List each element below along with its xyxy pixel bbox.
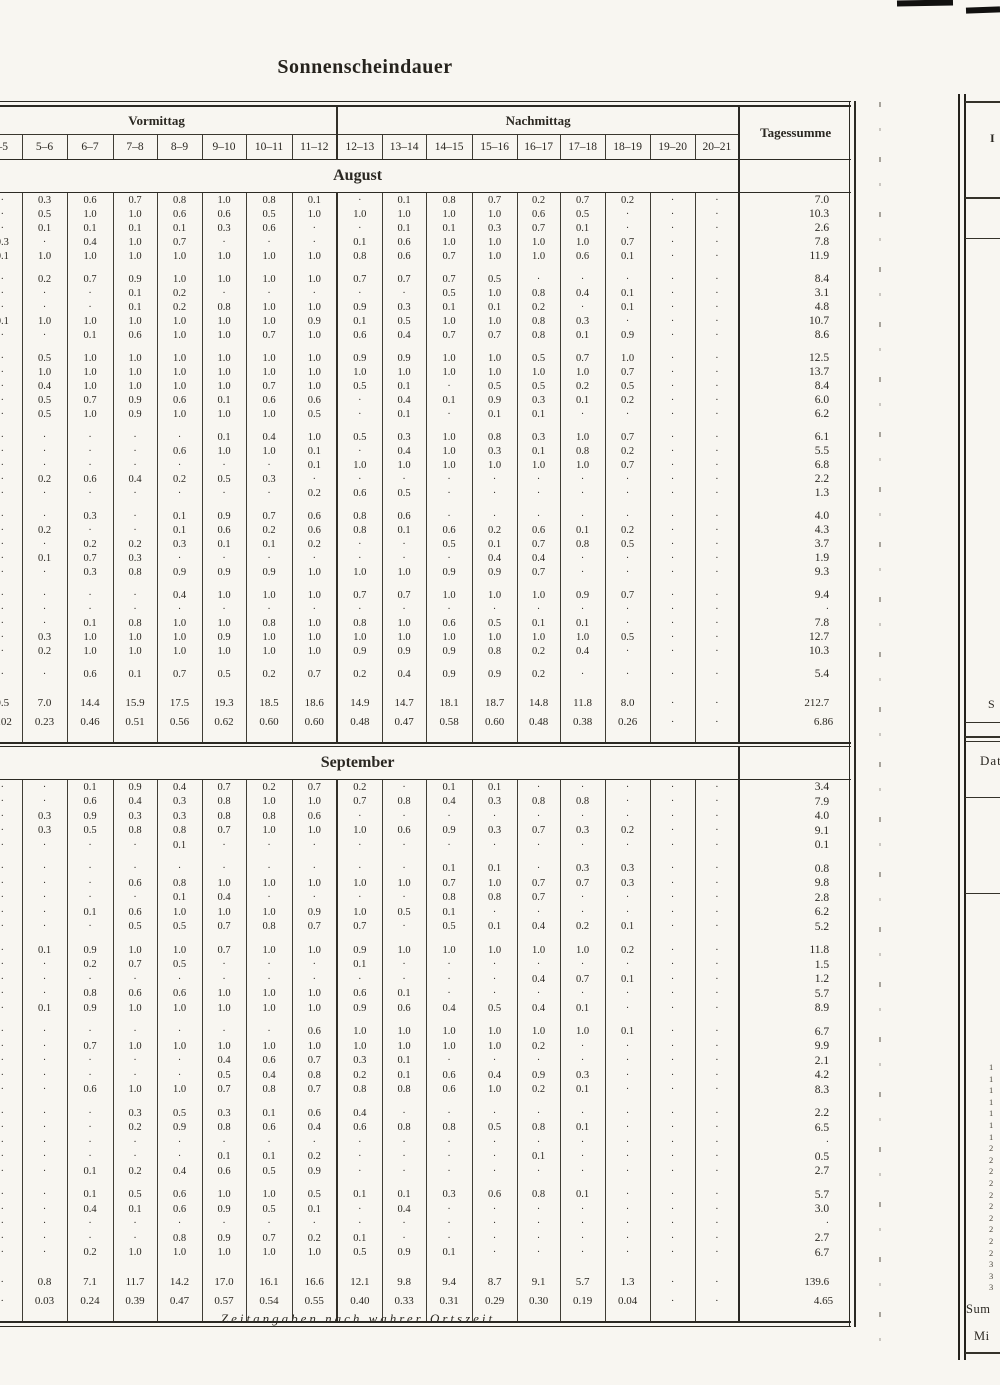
value-cell: ·: [517, 1231, 560, 1246]
spacer-cell: [739, 421, 851, 430]
fragment-date-digit: 1: [989, 1074, 993, 1084]
spacer-cell: [560, 733, 605, 743]
value-cell: ·: [0, 905, 22, 920]
value-cell: ·: [560, 809, 605, 824]
value-cell: ·: [560, 891, 605, 906]
spacer-cell: [337, 500, 382, 509]
tagessumme-cell: 1.5: [739, 958, 851, 973]
value-cell: 1.0: [202, 1188, 246, 1203]
value-cell: 0.7: [246, 509, 292, 523]
value-cell: 0.6: [337, 486, 382, 500]
fragment-date-digit: 1: [989, 1062, 993, 1072]
value-cell: 1.0: [246, 1039, 292, 1054]
value-cell: 1.0: [560, 630, 605, 644]
value-cell: ·: [382, 1231, 426, 1246]
value-cell: 0.1: [246, 1106, 292, 1121]
value-cell: 0.7: [560, 876, 605, 891]
tagessumme-cell: 9.9: [739, 1039, 851, 1054]
spacer-cell: [202, 1097, 246, 1106]
value-cell: 1.0: [246, 588, 292, 602]
value-cell: 0.4: [157, 1164, 202, 1179]
value-cell: ·: [605, 1135, 650, 1150]
value-cell: 0.1: [517, 1150, 560, 1165]
value-cell: ·: [650, 795, 695, 810]
value-cell: ·: [695, 891, 739, 906]
value-cell: ·: [650, 891, 695, 906]
value-cell: 0.6: [202, 1164, 246, 1179]
value-cell: 1.0: [292, 616, 337, 630]
value-cell: ·: [695, 824, 739, 839]
value-cell: ·: [650, 1068, 695, 1083]
value-cell: ·: [67, 300, 113, 314]
value-cell: ·: [202, 1217, 246, 1232]
value-cell: ·: [605, 891, 650, 906]
value-cell: 0.8: [246, 616, 292, 630]
spacer-cell: [67, 1260, 113, 1268]
value-cell: ·: [246, 1025, 292, 1040]
value-cell: 0.7: [67, 551, 113, 565]
value-cell: ·: [650, 509, 695, 523]
value-cell: 1.0: [246, 444, 292, 458]
spacer-cell: [202, 1016, 246, 1025]
value-cell: 0.7: [202, 1083, 246, 1098]
monthly-sum-row: 0.57.014.415.917.519.318.518.614.914.718…: [0, 689, 851, 711]
value-cell: ·: [560, 838, 605, 853]
spacer-cell: [382, 579, 426, 588]
value-cell: 11.8: [560, 689, 605, 711]
value-cell: 1.0: [202, 644, 246, 658]
spacer-cell: [292, 1097, 337, 1106]
value-cell: 1.0: [157, 1083, 202, 1098]
spacer-cell: [0, 1016, 22, 1025]
day-row: ·0.51.00.91.01.01.00.5·0.1·0.10.1····6.2: [0, 407, 851, 421]
spacer-cell: [22, 500, 67, 509]
day-row: ··0.60.10.70.50.20.70.20.40.90.90.2····5…: [0, 667, 851, 681]
value-cell: ·: [0, 393, 22, 407]
value-cell: 7.0: [22, 689, 67, 711]
value-cell: ·: [0, 602, 22, 616]
value-cell: ·: [695, 565, 739, 579]
value-cell: 1.0: [426, 207, 472, 221]
value-cell: ·: [650, 958, 695, 973]
value-cell: 0.9: [382, 1246, 426, 1261]
value-cell: 0.5: [22, 351, 67, 365]
value-cell: ·: [605, 272, 650, 286]
spacer-cell: [202, 658, 246, 667]
value-cell: ·: [650, 780, 695, 795]
spacer-cell: [292, 421, 337, 430]
value-cell: ·: [650, 809, 695, 824]
spacer-cell: [113, 733, 157, 743]
value-cell: 0.8: [472, 644, 517, 658]
value-cell: 0.4: [113, 472, 157, 486]
value-cell: 1.0: [202, 365, 246, 379]
value-cell: 0.1: [472, 537, 517, 551]
spacer-cell: [426, 1016, 472, 1025]
value-cell: 1.0: [246, 795, 292, 810]
value-cell: 0.1: [202, 430, 246, 444]
value-cell: 0.4: [426, 795, 472, 810]
value-cell: ·: [605, 1246, 650, 1261]
day-row: ·······0.61.01.01.01.01.01.00.1··6.7: [0, 1025, 851, 1040]
value-cell: ·: [157, 1150, 202, 1165]
value-cell: 1.0: [426, 1025, 472, 1040]
value-cell: ·: [517, 1246, 560, 1261]
value-cell: 0.7: [605, 365, 650, 379]
value-cell: 0.7: [605, 235, 650, 249]
value-cell: 0.4: [560, 644, 605, 658]
value-cell: 0.5: [472, 1121, 517, 1136]
value-cell: ·: [67, 1121, 113, 1136]
value-cell: ·: [0, 1135, 22, 1150]
value-cell: 0.5: [472, 1001, 517, 1016]
value-cell: 0.2: [605, 393, 650, 407]
spacer-cell: [113, 421, 157, 430]
value-cell: ·: [650, 235, 695, 249]
spacer-cell: [202, 579, 246, 588]
value-cell: 0.8: [67, 987, 113, 1002]
month-label-row: September: [0, 747, 851, 780]
value-cell: ·: [0, 972, 22, 987]
value-cell: ·: [382, 472, 426, 486]
value-cell: 1.0: [113, 630, 157, 644]
value-cell: 1.0: [246, 272, 292, 286]
spacer-cell: [650, 1179, 695, 1188]
value-cell: 0.1: [426, 300, 472, 314]
value-cell: ·: [202, 235, 246, 249]
value-cell: ·: [157, 862, 202, 877]
value-cell: 1.0: [292, 328, 337, 342]
value-cell: ·: [695, 314, 739, 328]
value-cell: 0.6: [292, 509, 337, 523]
tagessumme-cell: 1.2: [739, 972, 851, 987]
tagessumme-cell: 6.1: [739, 430, 851, 444]
value-cell: 0.6: [113, 328, 157, 342]
value-cell: 0.7: [157, 235, 202, 249]
value-cell: 0.9: [337, 300, 382, 314]
value-cell: 0.7: [605, 430, 650, 444]
value-cell: 1.0: [426, 943, 472, 958]
value-cell: 0.6: [560, 249, 605, 263]
value-cell: 0.9: [382, 351, 426, 365]
value-cell: ·: [202, 958, 246, 973]
value-cell: 0.6: [67, 472, 113, 486]
spacer-cell: [337, 733, 382, 743]
spacer-cell: [113, 1097, 157, 1106]
value-cell: ·: [0, 920, 22, 935]
day-row: ··0.60.40.30.81.01.00.70.80.40.30.80.8··…: [0, 795, 851, 810]
spacer-row: [0, 681, 851, 689]
value-cell: ·: [157, 1068, 202, 1083]
value-cell: 0.2: [246, 780, 292, 795]
value-cell: ·: [157, 972, 202, 987]
tagessumme-cell: 1.9: [739, 551, 851, 565]
spacer-cell: [695, 681, 739, 689]
value-cell: 0.4: [246, 430, 292, 444]
value-cell: 0.8: [382, 1083, 426, 1098]
month-section: August·0.30.60.70.81.00.80.1·0.10.80.70.…: [0, 160, 851, 744]
value-cell: ·: [517, 272, 560, 286]
value-cell: ·: [67, 891, 113, 906]
value-cell: ·: [650, 1025, 695, 1040]
value-cell: ·: [0, 1268, 22, 1290]
value-cell: ·: [472, 987, 517, 1002]
spacer-cell: [113, 1179, 157, 1188]
value-cell: ·: [0, 795, 22, 810]
value-cell: 1.0: [157, 630, 202, 644]
hour-header-cell: 12–13: [337, 135, 382, 160]
value-cell: 0.7: [605, 588, 650, 602]
value-cell: ·: [695, 838, 739, 853]
value-cell: 0.3: [472, 795, 517, 810]
spacer-cell: [426, 934, 472, 943]
value-cell: ·: [517, 1217, 560, 1232]
value-cell: 0.7: [113, 958, 157, 973]
day-row: ·1.01.01.01.01.01.01.01.01.01.01.01.01.0…: [0, 365, 851, 379]
value-cell: 1.0: [157, 328, 202, 342]
value-cell: 0.2: [246, 667, 292, 681]
value-cell: ·: [22, 486, 67, 500]
spacer-cell: [517, 263, 560, 272]
value-cell: ·: [650, 987, 695, 1002]
value-cell: 0.1: [517, 407, 560, 421]
value-cell: 0.7: [382, 272, 426, 286]
value-cell: ·: [426, 1150, 472, 1165]
value-cell: 0.1: [382, 523, 426, 537]
value-cell: 0.6: [292, 1025, 337, 1040]
value-cell: ·: [67, 838, 113, 853]
value-cell: ·: [292, 235, 337, 249]
spacer-cell: [157, 579, 202, 588]
table-right-double-rule: [849, 101, 856, 1327]
day-row: ·0.41.01.01.01.00.71.00.50.1·0.50.50.20.…: [0, 379, 851, 393]
value-cell: ·: [517, 1135, 560, 1150]
value-cell: ·: [517, 602, 560, 616]
value-cell: 0.9: [202, 630, 246, 644]
value-cell: 0.3: [560, 1068, 605, 1083]
value-cell: 0.48: [517, 711, 560, 733]
spacer-cell: [67, 263, 113, 272]
value-cell: 0.8: [337, 1083, 382, 1098]
value-cell: ·: [246, 235, 292, 249]
value-cell: ·: [605, 1001, 650, 1016]
value-cell: 0.5: [605, 537, 650, 551]
spacer-cell: [605, 263, 650, 272]
value-cell: ·: [246, 891, 292, 906]
value-cell: 0.1: [202, 537, 246, 551]
spacer-cell: [382, 342, 426, 351]
value-cell: 1.0: [113, 379, 157, 393]
value-cell: ·: [605, 987, 650, 1002]
value-cell: ·: [0, 551, 22, 565]
value-cell: ·: [0, 286, 22, 300]
value-cell: ·: [605, 958, 650, 973]
value-cell: 0.5: [22, 407, 67, 421]
spacer-cell: [382, 421, 426, 430]
value-cell: ·: [0, 616, 22, 630]
value-cell: ·: [426, 551, 472, 565]
value-cell: ·: [605, 1121, 650, 1136]
value-cell: 0.1: [157, 891, 202, 906]
value-cell: ·: [246, 1217, 292, 1232]
value-cell: 0.4: [67, 235, 113, 249]
day-row: ·0.20.60.40.20.50.3··········2.2: [0, 472, 851, 486]
spacer-cell: [202, 681, 246, 689]
value-cell: 0.9: [560, 588, 605, 602]
month-label: August: [0, 160, 739, 193]
tagessumme-cell: 2.1: [739, 1054, 851, 1069]
value-cell: 0.5: [382, 314, 426, 328]
tagessumme-cell: 139.6: [739, 1268, 851, 1290]
value-cell: ·: [157, 602, 202, 616]
tagessumme-cell: ·: [739, 602, 851, 616]
value-cell: 0.6: [246, 221, 292, 235]
value-cell: ·: [517, 809, 560, 824]
tagessumme-cell: ·: [739, 1135, 851, 1150]
value-cell: 0.6: [202, 523, 246, 537]
spacer-cell: [426, 733, 472, 743]
value-cell: 1.0: [67, 630, 113, 644]
tagessumme-cell: 11.9: [739, 249, 851, 263]
day-row: ·0.30.50.80.80.71.01.01.00.60.90.30.70.3…: [0, 824, 851, 839]
value-cell: 0.5: [113, 920, 157, 935]
value-cell: 0.8: [246, 193, 292, 208]
spacer-row: [0, 658, 851, 667]
value-cell: ·: [0, 824, 22, 839]
fragment-date-digit: 3: [989, 1282, 993, 1292]
spacer-cell: [292, 1016, 337, 1025]
hour-header-cell: 7–8: [113, 135, 157, 160]
value-cell: ·: [650, 523, 695, 537]
value-cell: ·: [0, 1083, 22, 1098]
spacer-cell: [0, 342, 22, 351]
value-cell: ·: [695, 588, 739, 602]
value-cell: 0.4: [560, 286, 605, 300]
value-cell: ·: [22, 565, 67, 579]
value-cell: ·: [650, 689, 695, 711]
spacer-cell: [650, 421, 695, 430]
value-cell: 9.8: [382, 1268, 426, 1290]
value-cell: 0.30: [517, 1290, 560, 1312]
value-cell: ·: [695, 972, 739, 987]
value-cell: 1.0: [246, 300, 292, 314]
value-cell: 1.0: [202, 249, 246, 263]
spacer-cell: [695, 1179, 739, 1188]
spacer-cell: [113, 1016, 157, 1025]
value-cell: 1.0: [292, 644, 337, 658]
value-cell: 0.2: [517, 667, 560, 681]
value-cell: 1.0: [382, 630, 426, 644]
value-cell: ·: [67, 430, 113, 444]
value-cell: 0.1: [560, 393, 605, 407]
value-cell: 0.7: [382, 588, 426, 602]
tagessumme-cell: 8.4: [739, 379, 851, 393]
value-cell: 0.03: [22, 1290, 67, 1312]
value-cell: ·: [202, 972, 246, 987]
tagessumme-cell: 9.8: [739, 876, 851, 891]
value-cell: 0.1: [113, 286, 157, 300]
value-cell: ·: [650, 1083, 695, 1098]
value-cell: 0.1: [605, 1025, 650, 1040]
value-cell: 0.1: [472, 407, 517, 421]
value-cell: ·: [650, 1039, 695, 1054]
value-cell: 0.8: [157, 1231, 202, 1246]
spacer-cell: [739, 263, 851, 272]
value-cell: 0.7: [246, 328, 292, 342]
fragment-date-digit: 2: [989, 1224, 993, 1234]
spacer-cell: [426, 421, 472, 430]
value-cell: 19.3: [202, 689, 246, 711]
value-cell: ·: [695, 472, 739, 486]
value-cell: ·: [695, 876, 739, 891]
value-cell: ·: [22, 430, 67, 444]
value-cell: ·: [22, 602, 67, 616]
value-cell: 0.3: [202, 1106, 246, 1121]
tagessumme-cell: 2.7: [739, 1231, 851, 1246]
day-row: ··0.71.01.01.01.01.01.01.01.01.00.2····9…: [0, 1039, 851, 1054]
value-cell: 0.6: [337, 328, 382, 342]
value-cell: ·: [202, 551, 246, 565]
value-cell: ·: [292, 286, 337, 300]
value-cell: 0.1: [157, 221, 202, 235]
value-cell: 0.9: [337, 351, 382, 365]
value-cell: ·: [382, 780, 426, 795]
value-cell: 0.1: [382, 1188, 426, 1203]
value-cell: ·: [292, 862, 337, 877]
value-cell: ·: [517, 780, 560, 795]
value-cell: 0.8: [202, 795, 246, 810]
value-cell: 0.5: [337, 379, 382, 393]
day-row: 0.11.01.01.01.01.01.00.90.10.51.01.00.80…: [0, 314, 851, 328]
value-cell: 17.5: [157, 689, 202, 711]
value-cell: ·: [0, 1039, 22, 1054]
value-cell: ·: [426, 1164, 472, 1179]
spacer-cell: [0, 1260, 22, 1268]
value-cell: ·: [517, 838, 560, 853]
value-cell: 0.8: [113, 565, 157, 579]
value-cell: ·: [695, 1121, 739, 1136]
value-cell: ·: [695, 1202, 739, 1217]
value-cell: 18.5: [246, 689, 292, 711]
value-cell: 0.3: [113, 1106, 157, 1121]
value-cell: 0.3: [202, 221, 246, 235]
value-cell: ·: [202, 1135, 246, 1150]
value-cell: ·: [695, 444, 739, 458]
value-cell: ·: [22, 1150, 67, 1165]
value-cell: 1.0: [472, 286, 517, 300]
group-header-row: Vormittag Nachmittag Tagessumme: [0, 107, 851, 135]
hour-header-cell: 13–14: [382, 135, 426, 160]
value-cell: 0.4: [517, 920, 560, 935]
value-cell: ·: [22, 1039, 67, 1054]
day-row: ··0.10.61.01.00.71.00.60.40.70.70.80.10.…: [0, 328, 851, 342]
value-cell: ·: [22, 458, 67, 472]
value-cell: ·: [426, 809, 472, 824]
value-cell: ·: [0, 207, 22, 221]
value-cell: 5.7: [560, 1268, 605, 1290]
value-cell: ·: [695, 272, 739, 286]
value-cell: ·: [337, 193, 382, 208]
tagessumme-cell: 2.8: [739, 891, 851, 906]
value-cell: ·: [22, 780, 67, 795]
value-cell: 0.6: [113, 905, 157, 920]
value-cell: 1.0: [292, 1001, 337, 1016]
value-cell: 0.1: [292, 1202, 337, 1217]
value-cell: 1.0: [517, 365, 560, 379]
day-row: ···0.20.90.80.60.40.60.80.80.50.80.1···6…: [0, 1121, 851, 1136]
spacer-cell: [517, 1016, 560, 1025]
value-cell: ·: [472, 1231, 517, 1246]
